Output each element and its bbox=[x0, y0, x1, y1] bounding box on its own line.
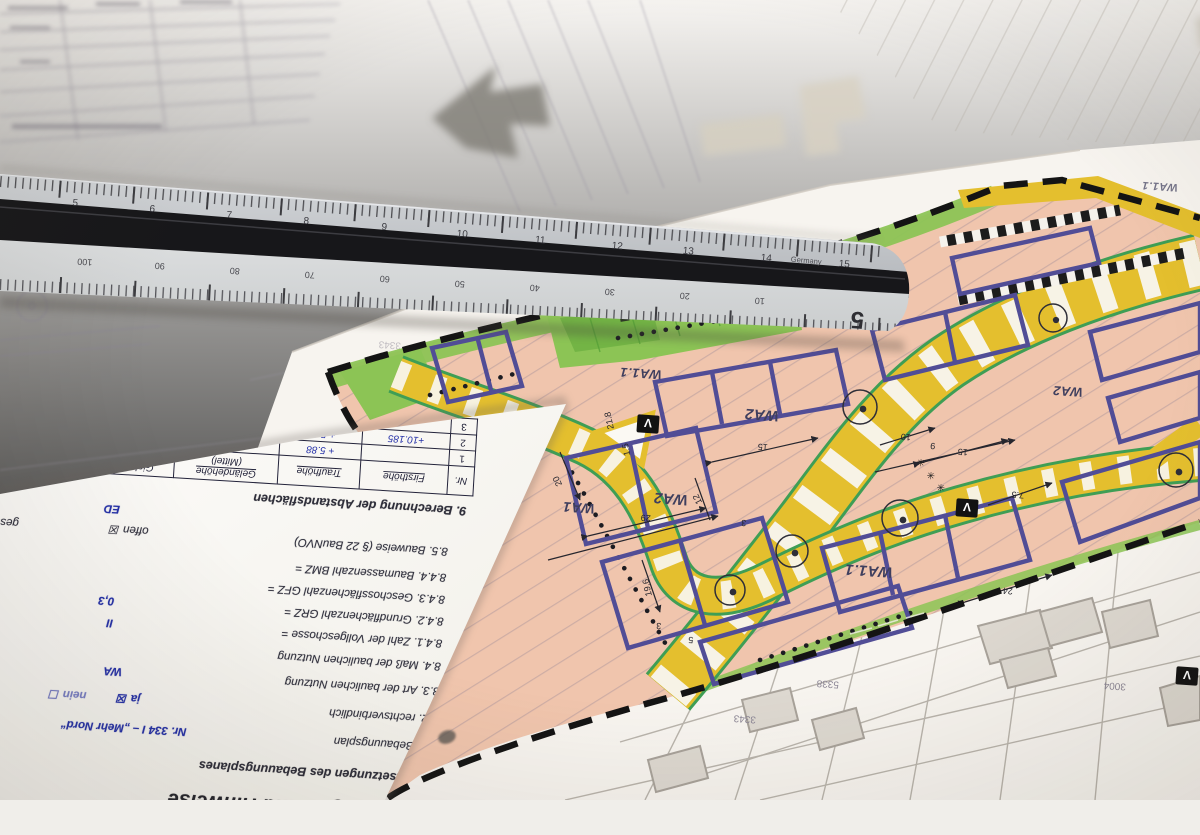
ruler-number: 20 bbox=[679, 291, 690, 302]
item-8-3-label: 8.3. Art der baulichen Nutzung bbox=[284, 675, 439, 696]
col-traufhoehe-label: Traufhöhe bbox=[296, 465, 341, 479]
dim-label: 9 bbox=[930, 441, 936, 451]
dim-label: 10 bbox=[900, 432, 911, 443]
zone-label: WA2 bbox=[1052, 383, 1083, 400]
ruler-number: 80 bbox=[229, 266, 240, 277]
ruler-number: 60 bbox=[379, 274, 390, 285]
ruler-number: 10 bbox=[456, 229, 468, 241]
dim-label: 15 bbox=[757, 442, 768, 453]
v-sign-label: V bbox=[963, 500, 972, 515]
col-nr: Nr. bbox=[447, 465, 475, 496]
col-firsthoehe-label: Firsthöhe bbox=[383, 470, 425, 484]
ruler-number: 50 bbox=[454, 279, 465, 290]
item-8-1-value: Nr. 334 I – „Mehr Nord“ bbox=[60, 718, 186, 738]
dim-label: 5 bbox=[688, 635, 694, 645]
dim-label: 3 bbox=[741, 518, 747, 528]
item-8-4-1-value: II bbox=[106, 616, 113, 628]
cell-nr: 2 bbox=[450, 433, 477, 451]
item-8-5-label: 8.5. Bauweise (§ 22 BauNVO) bbox=[294, 536, 449, 557]
ruler-number: 10 bbox=[754, 296, 765, 307]
ruler-scale-digit: 5 bbox=[850, 306, 865, 334]
item-8-3-value: WA bbox=[103, 664, 122, 677]
col-traufhoehe: Traufhöhe bbox=[277, 455, 361, 489]
item-8-2-ja: ja ☒ bbox=[117, 691, 141, 706]
item-8-5-geschlossen: geschlossen ☐ bbox=[0, 512, 19, 531]
item-8-5-offen: offen ☒ bbox=[109, 522, 149, 538]
asterisk-icon: ✳ bbox=[936, 481, 945, 493]
zone-label: WA1.1 bbox=[1141, 179, 1178, 193]
ed-note: ED bbox=[104, 502, 121, 515]
zone-label: WA1 bbox=[562, 499, 595, 517]
dim-label: 7.5 bbox=[1011, 490, 1024, 501]
ruler-number: 15 bbox=[838, 259, 850, 271]
ruler-number: 11 bbox=[535, 235, 547, 247]
zone-label: WA1.1 bbox=[844, 560, 893, 580]
col-firsthoehe: Firsthöhe bbox=[359, 460, 449, 494]
dim-label: 29 bbox=[640, 513, 651, 524]
photo-of-planning-documents: 5338 3004 3343 3645 3343 bbox=[0, 0, 1200, 800]
parcel-number: 3343 bbox=[378, 338, 401, 351]
item-8-2-nein: nein ☐ bbox=[49, 687, 87, 703]
ruler-number: 90 bbox=[154, 261, 165, 272]
col-gelaendehoehe-label: Geländehöhe bbox=[196, 465, 257, 480]
asterisk-icon: ✳ bbox=[926, 469, 935, 481]
zone-label: WA2 bbox=[653, 489, 688, 508]
ruler-number: 12 bbox=[611, 241, 623, 253]
parcel-number: 3343 bbox=[733, 712, 756, 725]
ruler-number: 100 bbox=[77, 256, 93, 267]
ruler-number: 13 bbox=[682, 246, 694, 258]
dim-label: 24 bbox=[1002, 586, 1013, 597]
v-sign-label: V bbox=[1183, 668, 1192, 683]
parcel-number: 5338 bbox=[816, 677, 839, 690]
dim-label: 3 bbox=[656, 621, 662, 631]
zone-label: WA1.1 bbox=[619, 365, 662, 383]
item-8-4-2-value: 0,3 bbox=[98, 594, 115, 607]
asterisk-icon: ✳ bbox=[916, 456, 925, 468]
ruler-number: 30 bbox=[604, 287, 615, 298]
parcel-number: 3004 bbox=[1103, 679, 1126, 692]
dim-label: 15 bbox=[957, 447, 968, 458]
zone-label: WA2 bbox=[744, 405, 779, 424]
cell-nr: 3 bbox=[451, 418, 478, 436]
ruler-number: 14 bbox=[760, 253, 772, 265]
v-sign-label: V bbox=[644, 416, 653, 431]
ruler-number: 70 bbox=[304, 270, 315, 281]
cell-nr: 1 bbox=[449, 449, 476, 467]
ruler-number: 40 bbox=[529, 283, 540, 294]
item-8-2-label: 8.2. rechtsverbindlich bbox=[329, 706, 438, 725]
